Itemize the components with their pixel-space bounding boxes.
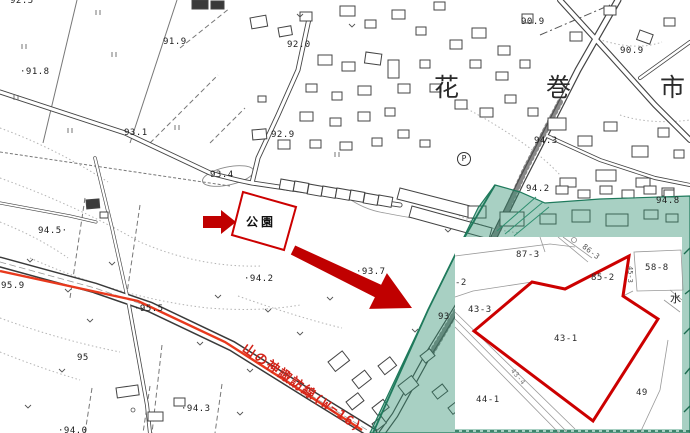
spot-elevation-label: 94.5·: [38, 226, 68, 236]
cadastral-map: 92.5 91.9 ·91.8 93.1 92.0 92.9 90.9 90.9…: [0, 0, 690, 433]
map-linework: [0, 0, 690, 433]
parcel-label: 45-3: [626, 266, 634, 283]
spot-elevation-label: 94.2: [526, 184, 550, 194]
pointer-arrow-small: [203, 210, 236, 234]
spot-elevation-label: 95: [77, 353, 89, 363]
parcel-label: 58-8: [645, 263, 669, 273]
spot-elevation-label: 94.8: [656, 196, 680, 206]
spot-elevation-label: 90.9: [521, 17, 545, 27]
parking-icon: P: [457, 152, 471, 166]
spot-elevation-label: 93: [438, 312, 450, 322]
spot-elevation-label: 93.4: [210, 170, 234, 180]
spot-elevation-label: ·95.5: [134, 304, 164, 314]
spot-elevation-label: 90.9: [620, 46, 644, 56]
highlighted-parcel-label: 43-1: [554, 334, 578, 344]
parcel-label: 85-2: [591, 273, 615, 283]
spot-elevation-label: 95.9: [1, 281, 25, 291]
parcel-label: -2: [455, 278, 467, 288]
spot-elevation-label: ·94.3: [181, 404, 211, 414]
pointer-arrow-large: [291, 246, 412, 309]
city-name-char: 巻: [546, 68, 571, 104]
spot-elevation-label: ·91.8: [20, 67, 50, 77]
city-name-char: 花: [434, 68, 459, 104]
water-label: 水: [670, 290, 681, 306]
spot-elevation-label: ·94.2: [244, 274, 274, 284]
parcel-label: 44-1: [476, 395, 500, 405]
city-name-char: 市: [660, 68, 685, 104]
parcel-label: 87-3: [516, 250, 540, 260]
survey-point: [131, 408, 135, 412]
spot-elevation-label: 92.0: [287, 40, 311, 50]
spot-elevation-label: ·93.7: [356, 267, 386, 277]
spot-elevation-label: 93.1: [124, 128, 148, 138]
spot-elevation-label: 92.9: [271, 130, 295, 140]
parcel-label: 49: [636, 388, 648, 398]
parcel-label: 43-3: [468, 305, 492, 315]
spot-elevation-label: 94.3: [534, 136, 558, 146]
park-label: 公園: [246, 213, 276, 230]
spot-elevation-label: 91.9: [163, 37, 187, 47]
spot-elevation-label: ·94.0: [58, 426, 88, 433]
spot-elevation-label: 92.5: [10, 0, 34, 6]
